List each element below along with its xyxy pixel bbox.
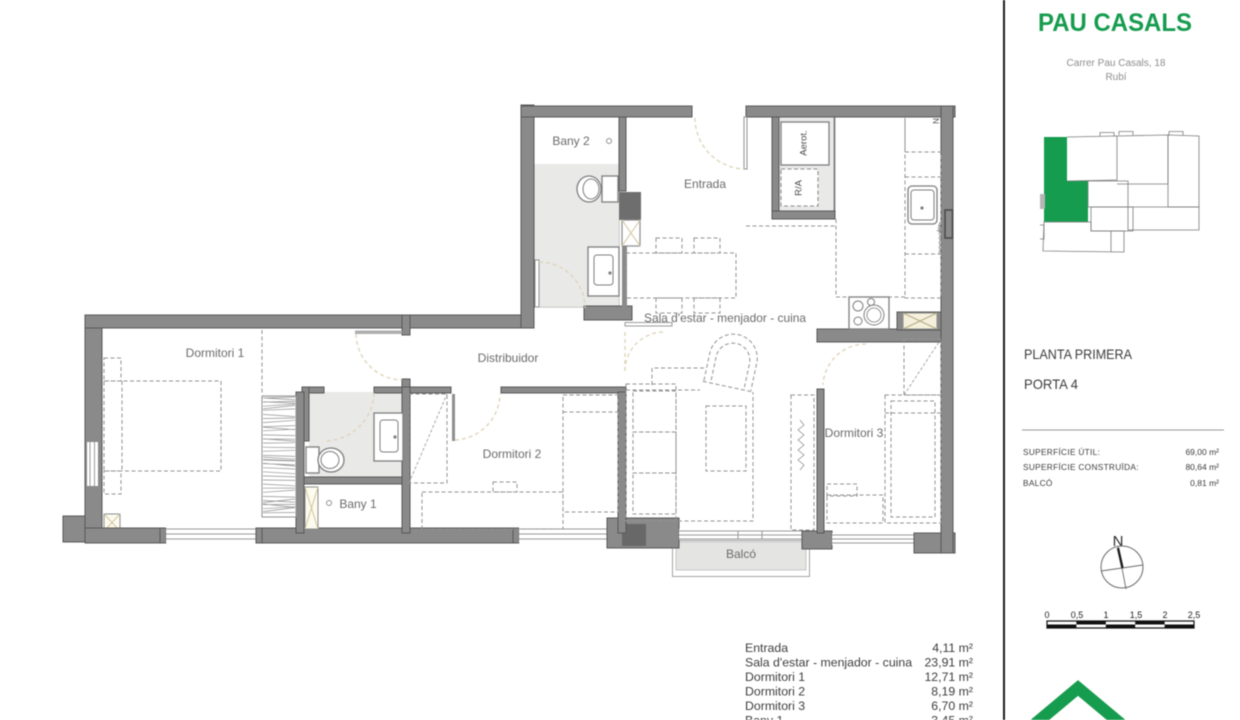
- svg-text:Dormitori 1: Dormitori 1: [186, 346, 245, 360]
- svg-text:2,5: 2,5: [1188, 610, 1201, 620]
- svg-text:1,5: 1,5: [1130, 610, 1143, 620]
- svg-text:Bany 2: Bany 2: [552, 134, 590, 148]
- svg-text:Carrer Pau Casals, 18: Carrer Pau Casals, 18: [1067, 58, 1166, 69]
- svg-text:Bany 1: Bany 1: [339, 497, 377, 511]
- svg-text:23,91 m²: 23,91 m²: [924, 656, 973, 670]
- svg-text:Balcó: Balcó: [726, 547, 756, 561]
- svg-text:8,19 m²: 8,19 m²: [931, 685, 973, 699]
- svg-text:PAU CASALS: PAU CASALS: [1038, 9, 1192, 37]
- svg-text:12,71 m²: 12,71 m²: [924, 670, 973, 684]
- svg-text:6,70 m²: 6,70 m²: [931, 699, 973, 713]
- svg-text:R/A: R/A: [794, 179, 805, 196]
- svg-text:Dormitori 1: Dormitori 1: [745, 670, 805, 684]
- svg-text:Sala d'estar - menjador - cuin: Sala d'estar - menjador - cuina: [644, 311, 806, 325]
- svg-text:PORTA 4: PORTA 4: [1024, 376, 1078, 392]
- svg-text:Entrada: Entrada: [684, 177, 726, 191]
- svg-text:Aerot.: Aerot.: [799, 130, 810, 155]
- svg-text:0,5: 0,5: [1071, 610, 1084, 620]
- svg-text:Dormitori 2: Dormitori 2: [745, 685, 805, 699]
- svg-text:4,11 m²: 4,11 m²: [932, 641, 973, 655]
- svg-text:0,81 m²: 0,81 m²: [1190, 478, 1219, 488]
- svg-text:Dormitori 3: Dormitori 3: [825, 426, 884, 440]
- svg-text:1: 1: [1103, 610, 1108, 620]
- svg-text:Sala d'estar - menjador - cuin: Sala d'estar - menjador - cuina: [745, 656, 912, 670]
- svg-text:0: 0: [1044, 610, 1049, 620]
- svg-text:SUPERFÍCIE CONSTRUÏDA:: SUPERFÍCIE CONSTRUÏDA:: [1023, 462, 1139, 472]
- svg-text:2: 2: [1162, 610, 1167, 620]
- svg-text:Bany 1: Bany 1: [745, 714, 783, 720]
- svg-text:80,64 m²: 80,64 m²: [1185, 462, 1219, 472]
- svg-text:3,45 m²: 3,45 m²: [931, 714, 973, 720]
- svg-text:BALCÓ: BALCÓ: [1023, 478, 1053, 488]
- svg-text:Dormitori 3: Dormitori 3: [745, 699, 805, 713]
- svg-text:Entrada: Entrada: [745, 641, 788, 655]
- svg-text:Aig.: Aig.: [937, 224, 943, 233]
- svg-text:Distribuidor: Distribuidor: [478, 351, 539, 365]
- svg-text:SUPERFÍCIE ÚTIL:: SUPERFÍCIE ÚTIL:: [1023, 447, 1100, 457]
- svg-text:Dormitori 2: Dormitori 2: [483, 447, 542, 461]
- svg-text:Rubí: Rubí: [1105, 72, 1126, 83]
- svg-text:PLANTA PRIMERA: PLANTA PRIMERA: [1024, 346, 1133, 362]
- svg-text:N: N: [931, 118, 940, 124]
- svg-text:69,00 m²: 69,00 m²: [1185, 447, 1219, 457]
